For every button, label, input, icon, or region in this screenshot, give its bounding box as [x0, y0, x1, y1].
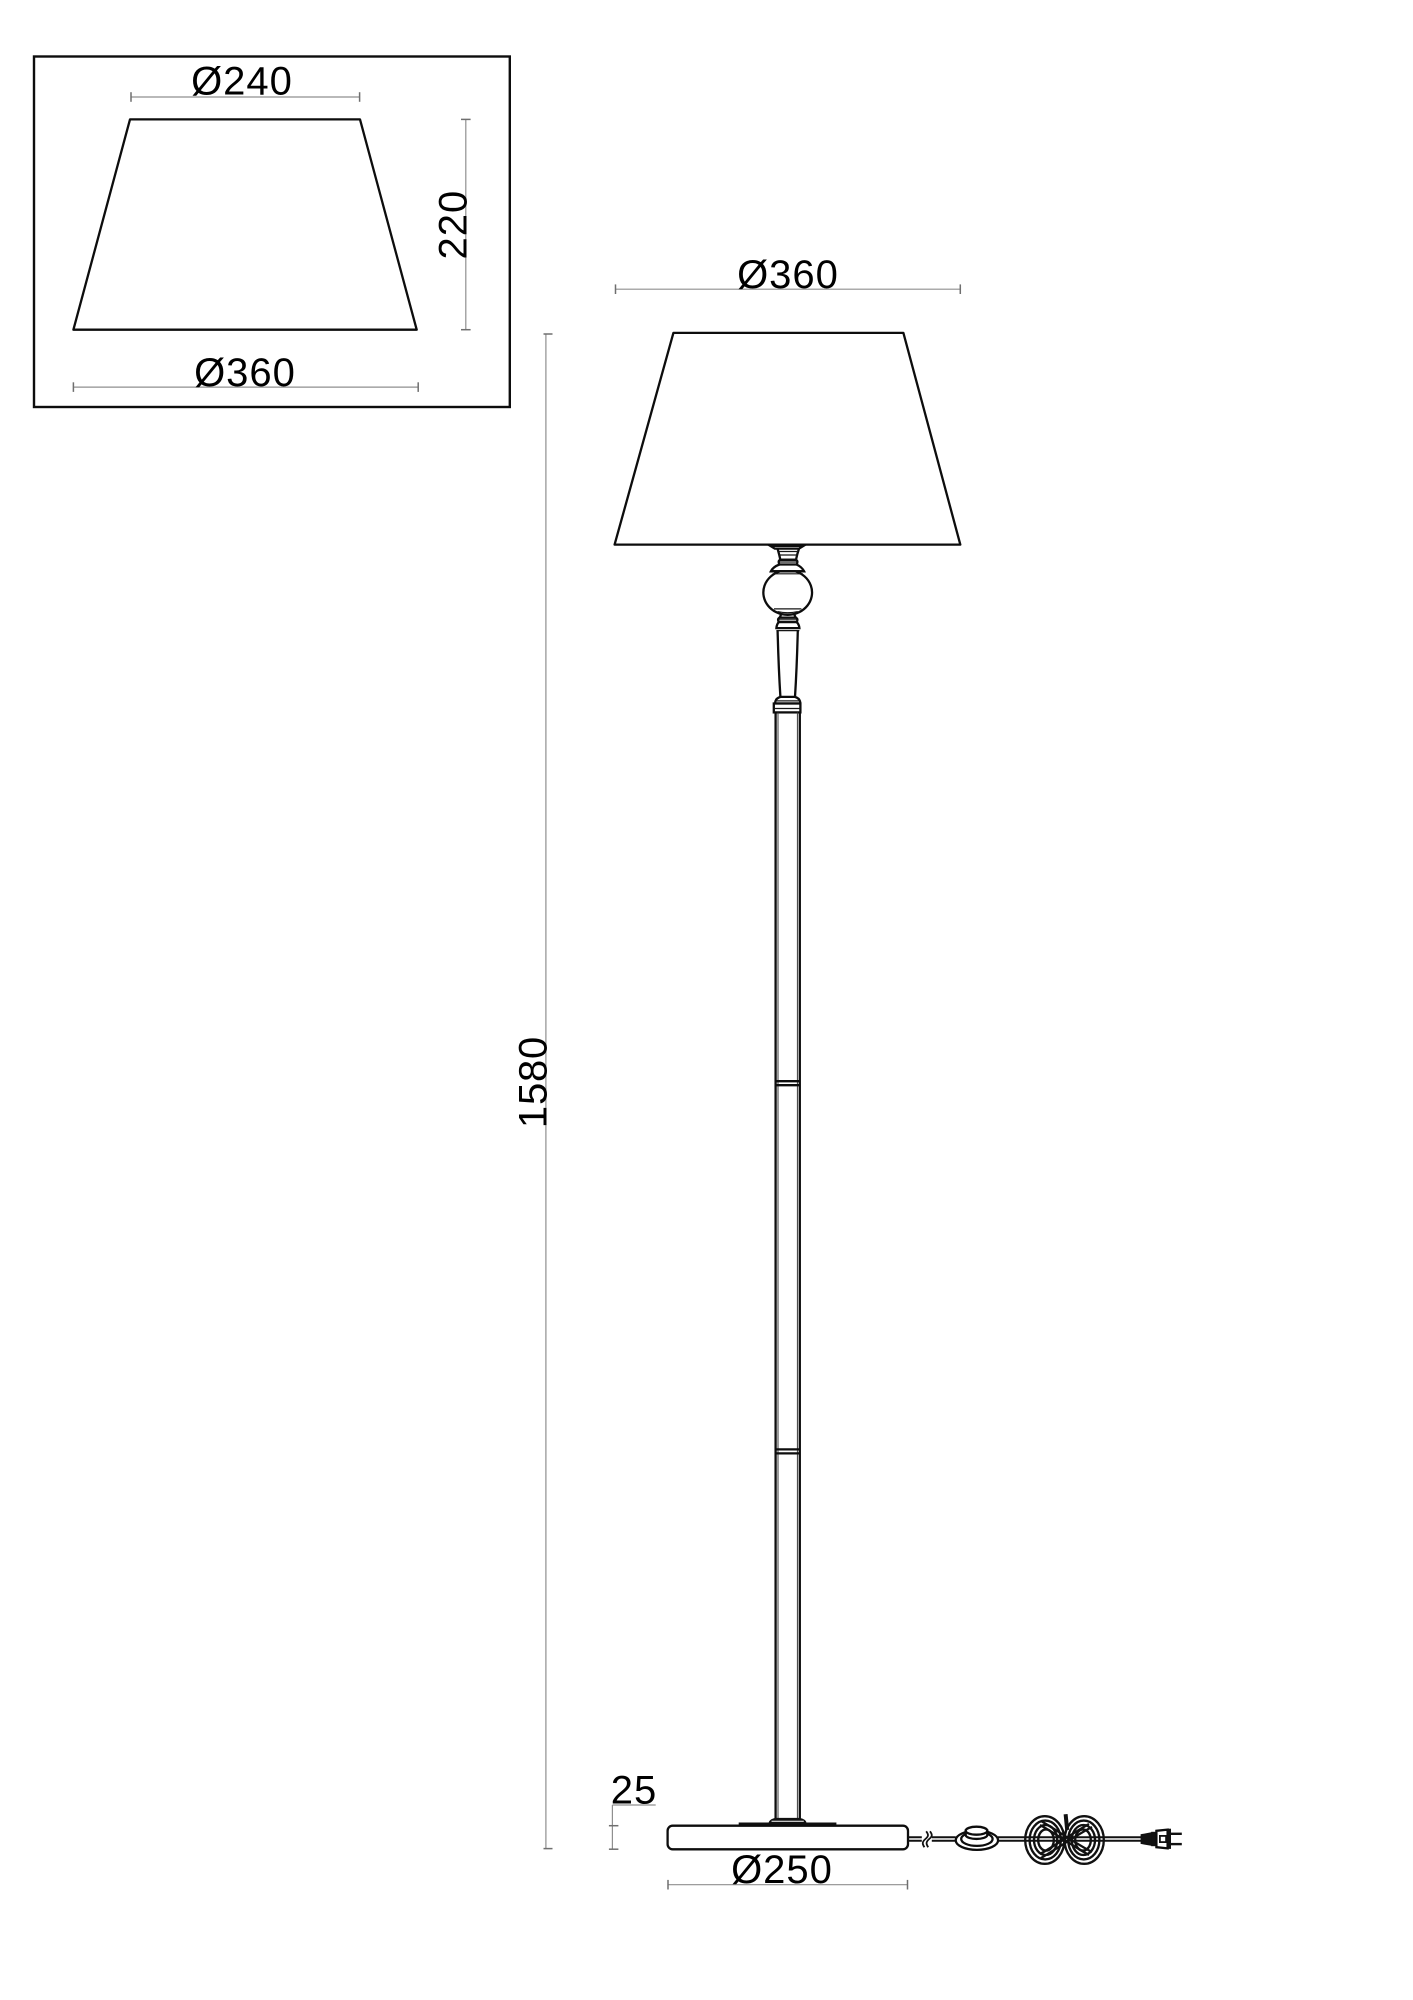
svg-text:Ø240: Ø240	[191, 60, 293, 104]
svg-text:220: 220	[432, 190, 476, 260]
svg-text:Ø250: Ø250	[731, 1848, 833, 1892]
svg-text:25: 25	[611, 1769, 658, 1813]
svg-text:1580: 1580	[512, 1036, 556, 1128]
svg-text:Ø360: Ø360	[194, 351, 296, 395]
svg-text:Ø360: Ø360	[737, 253, 839, 297]
